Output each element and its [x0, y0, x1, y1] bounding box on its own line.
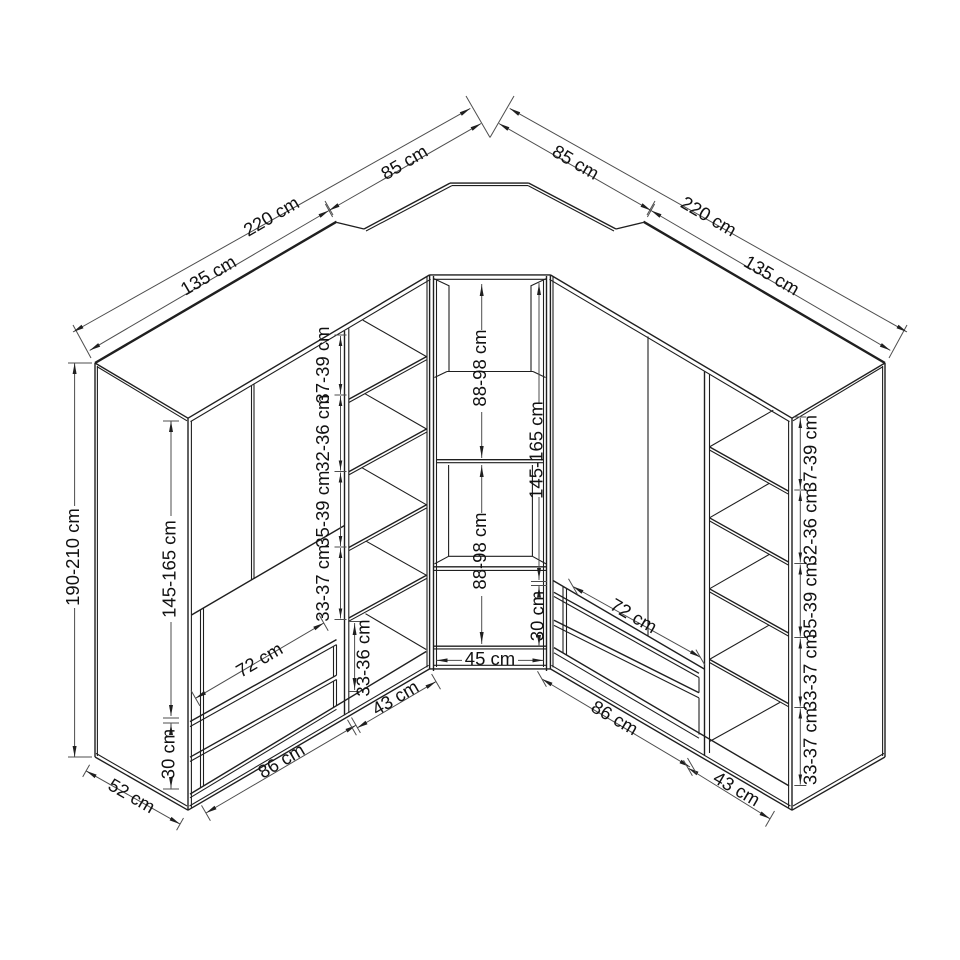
- svg-text:88-98 cm: 88-98 cm: [469, 329, 490, 406]
- svg-text:30 cm: 30 cm: [526, 591, 547, 641]
- svg-text:37-39 cm: 37-39 cm: [799, 415, 820, 492]
- svg-text:35-39 cm: 35-39 cm: [312, 471, 333, 548]
- svg-text:37-39 cm: 37-39 cm: [312, 326, 333, 403]
- svg-text:33-37 cm: 33-37 cm: [312, 545, 333, 622]
- svg-text:33-36 cm: 33-36 cm: [352, 619, 373, 696]
- svg-text:33-37 cm: 33-37 cm: [799, 634, 820, 711]
- svg-text:32-36 cm: 32-36 cm: [312, 395, 333, 472]
- svg-text:30 cm: 30 cm: [157, 729, 178, 779]
- svg-text:145-165 cm: 145-165 cm: [158, 520, 179, 618]
- svg-text:33-37 cm: 33-37 cm: [799, 708, 820, 785]
- svg-text:190-210 cm: 190-210 cm: [62, 508, 83, 606]
- svg-text:45 cm: 45 cm: [465, 648, 515, 669]
- svg-text:35-39 cm: 35-39 cm: [799, 562, 820, 639]
- svg-text:145-165 cm: 145-165 cm: [525, 401, 546, 499]
- svg-text:88-98 cm: 88-98 cm: [469, 512, 490, 589]
- svg-text:32-36 cm: 32-36 cm: [799, 488, 820, 565]
